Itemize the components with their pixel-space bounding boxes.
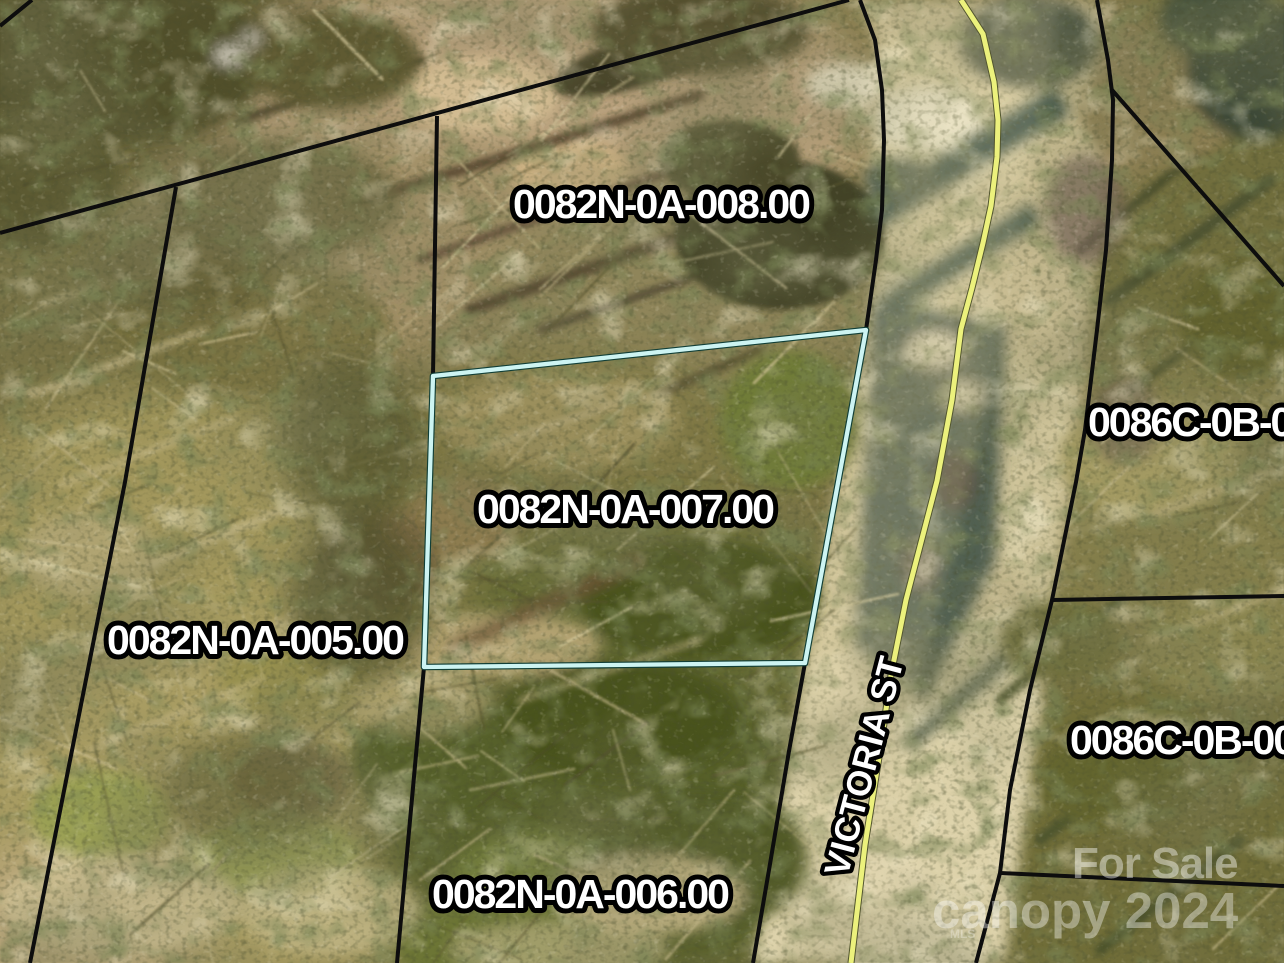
svg-text:0082N-0A-007.00: 0082N-0A-007.00 [477,486,774,532]
svg-text:0082N-0A-008.00: 0082N-0A-008.00 [513,181,810,227]
svg-text:0086C-0B-00: 0086C-0B-00 [1088,399,1284,445]
svg-text:0086C-0B-00: 0086C-0B-00 [1070,717,1284,763]
svg-text:For Sale: For Sale [1072,839,1238,888]
svg-text:0082N-0A-006.00: 0082N-0A-006.00 [432,871,729,917]
svg-text:canopy 2024: canopy 2024 [932,882,1239,939]
svg-text:0082N-0A-005.00: 0082N-0A-005.00 [107,617,404,663]
svg-text:MLS: MLS [950,927,975,941]
